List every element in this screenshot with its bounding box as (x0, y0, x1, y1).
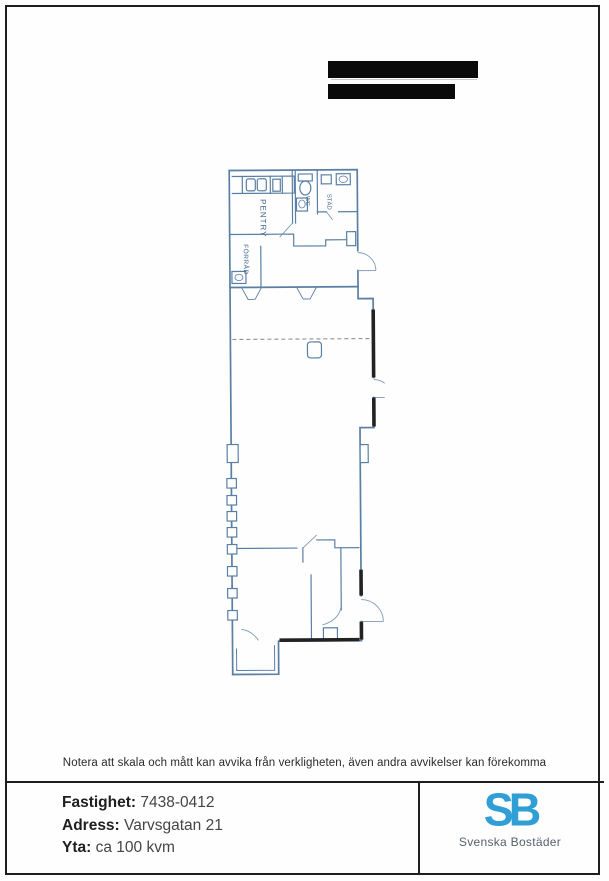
wall-notch (227, 444, 238, 462)
mullion-4 (227, 527, 237, 537)
property-info: Fastighet: 7438-0412 Adress: Varvsgatan … (62, 792, 223, 860)
thick-wall-bottom (279, 640, 359, 641)
property-field-adress: Adress: Varvsgatan 21 (62, 815, 223, 838)
plan-wall-right-mid (360, 398, 375, 596)
toilet-bowl (300, 181, 311, 195)
wall-inner-step (303, 540, 359, 562)
mullion-8 (228, 610, 238, 620)
right-wall-pilaster (360, 445, 368, 463)
sb-logo-mark: SB (430, 786, 590, 835)
mullion-3 (227, 511, 237, 521)
plan-wall-right-upper (358, 271, 374, 378)
field-label: Adress: (62, 817, 120, 834)
toilet-tank (298, 174, 312, 181)
forrad-sink-basin (235, 274, 243, 280)
vestibule-inner-wall (237, 645, 275, 670)
redaction-bar-1 (328, 61, 478, 78)
company-name: Svenska Bostäder (430, 835, 590, 849)
mullion-6 (227, 566, 237, 576)
plan-interior-walls (229, 170, 360, 642)
stove-burner-left (246, 179, 255, 191)
kitchen-appliance (273, 179, 281, 191)
door-leaf-wc (280, 223, 293, 237)
door-arc-right-top (358, 253, 376, 271)
field-label: Yta: (62, 839, 91, 856)
floor-plan-drawing: PENTRY FÖRRÅD WC STÄD (223, 154, 387, 700)
door-leaf-stad (326, 212, 332, 220)
double-door-swing-left (242, 288, 261, 299)
door-arc-vestibule (241, 629, 258, 640)
mullion-7 (228, 588, 238, 598)
wall-top-section-bottom (230, 287, 358, 288)
property-field-fastighet: Fastighet: 7438-0412 (62, 792, 223, 815)
door-arc-right-bottom (361, 599, 383, 621)
mullion-1 (227, 478, 237, 488)
company-logo: SB Svenska Bostäder (430, 786, 590, 849)
stad-sink (336, 174, 350, 185)
stad-sink-basin (339, 176, 347, 182)
stad-shelf (321, 175, 331, 184)
dashed-section-line (232, 339, 371, 340)
redaction-smear (331, 79, 477, 80)
field-value: Varvsgatan 21 (124, 817, 223, 834)
field-label: Fastighet: (62, 794, 136, 811)
mullion-2 (227, 495, 237, 505)
property-field-yta: Yta: ca 100 kvm (62, 837, 223, 860)
disclaimer-note: Notera att skala och mått kan avvika frå… (7, 757, 602, 769)
room-label-wc: WC (304, 196, 310, 207)
field-value: 7438-0412 (140, 794, 214, 811)
room-label-stad: STÄD (325, 194, 332, 211)
redaction-bar-2 (328, 84, 455, 99)
room-label-pentry: PENTRY (258, 199, 267, 237)
mullion-5 (227, 544, 237, 554)
door-arc-inner-room (322, 607, 341, 625)
door-leaf-inner (303, 535, 317, 548)
footer-divider-vertical (418, 782, 420, 875)
double-door-swing-right (297, 288, 316, 299)
scanned-document-page: PENTRY FÖRRÅD WC STÄD Notera att skala o… (0, 0, 609, 881)
window-mullions (227, 444, 370, 642)
stove-burner-right (257, 179, 266, 191)
radiator (347, 232, 356, 246)
room-label-forrad: FÖRRÅD (242, 244, 251, 275)
field-value: ca 100 kvm (96, 839, 175, 856)
plan-wall-bottom (232, 622, 361, 675)
pillar (307, 342, 321, 358)
